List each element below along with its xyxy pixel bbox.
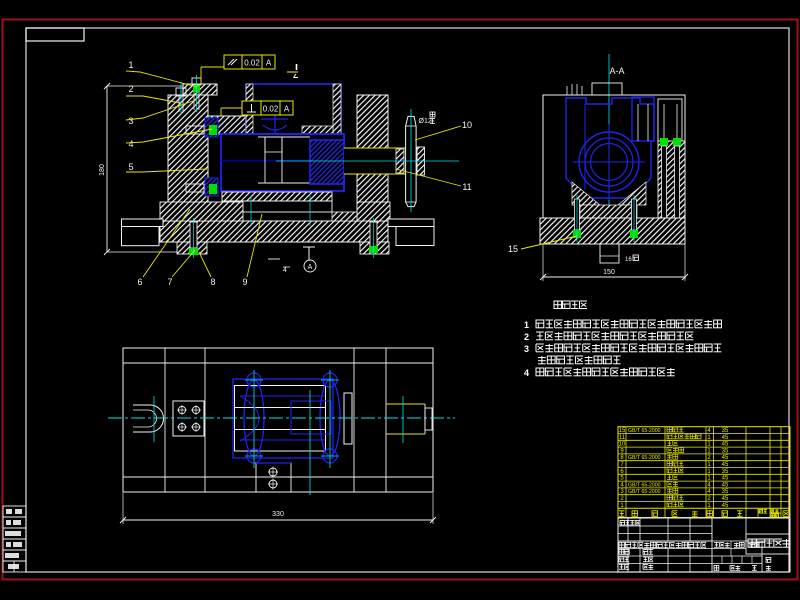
- svg-text:11: 11: [619, 435, 626, 441]
- svg-text:GB/T 65-2000: GB/T 65-2000: [628, 489, 661, 495]
- svg-text:11: 11: [462, 182, 471, 192]
- svg-text:9: 9: [242, 277, 247, 287]
- svg-text:A-A: A-A: [609, 66, 624, 76]
- svg-text:GB/T 65-2000: GB/T 65-2000: [628, 455, 661, 461]
- svg-text:4: 4: [283, 267, 287, 274]
- svg-text:45: 45: [722, 462, 729, 468]
- svg-text:2: 2: [128, 84, 133, 94]
- svg-text:Ø12: Ø12: [419, 118, 432, 125]
- svg-text:4: 4: [524, 368, 529, 378]
- svg-text:A: A: [284, 105, 290, 114]
- svg-text:15: 15: [508, 244, 518, 254]
- svg-text:45: 45: [722, 503, 729, 509]
- svg-text:0.02: 0.02: [244, 59, 260, 68]
- svg-text:35: 35: [722, 469, 729, 475]
- svg-text:1: 1: [524, 320, 529, 330]
- svg-text:45: 45: [722, 442, 729, 448]
- svg-text:2: 2: [524, 332, 529, 342]
- svg-text:3: 3: [524, 344, 529, 354]
- svg-text:4: 4: [128, 139, 133, 149]
- svg-text:A: A: [266, 59, 272, 68]
- svg-text:GB/T 65-2000: GB/T 65-2000: [628, 482, 661, 488]
- svg-text:6: 6: [137, 277, 142, 287]
- svg-text:35: 35: [722, 428, 729, 434]
- svg-text:3: 3: [128, 116, 133, 126]
- svg-text:7: 7: [167, 277, 172, 287]
- svg-text:16: 16: [625, 257, 632, 263]
- svg-text:10: 10: [462, 120, 472, 130]
- svg-text:5: 5: [128, 162, 133, 172]
- svg-text:GB/T 65-2000: GB/T 65-2000: [628, 428, 661, 434]
- svg-text:35: 35: [722, 448, 729, 454]
- svg-text:35: 35: [722, 489, 729, 495]
- svg-text:15: 15: [619, 428, 626, 434]
- svg-text:45: 45: [722, 476, 729, 482]
- svg-text:1: 1: [128, 60, 133, 70]
- svg-text:10: 10: [619, 442, 626, 448]
- svg-text:45: 45: [722, 435, 729, 441]
- svg-text:45: 45: [722, 496, 729, 502]
- svg-text:330: 330: [272, 511, 284, 518]
- svg-text:180: 180: [99, 164, 106, 176]
- svg-text:45: 45: [722, 455, 729, 461]
- svg-text:45: 45: [722, 482, 729, 488]
- svg-text:0.02: 0.02: [263, 105, 279, 114]
- svg-text:A: A: [308, 264, 313, 271]
- svg-text:8: 8: [210, 277, 215, 287]
- svg-text:150: 150: [603, 269, 615, 276]
